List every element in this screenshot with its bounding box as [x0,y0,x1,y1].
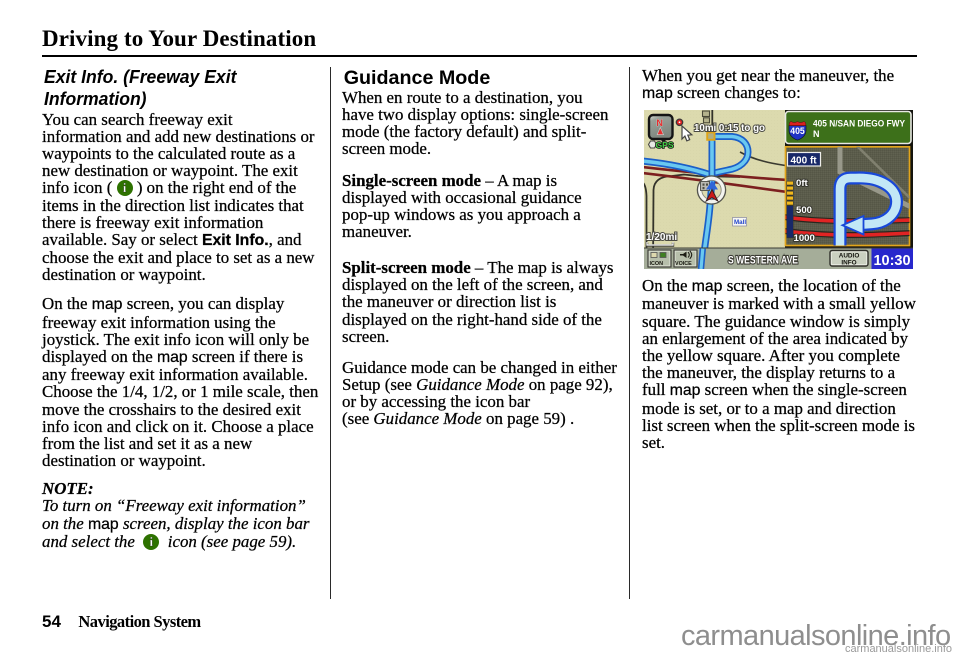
svg-text:N: N [656,118,663,128]
svg-text:S WESTERN AVE: S WESTERN AVE [728,255,798,267]
svg-text:0ft: 0ft [796,178,809,189]
svg-text:405: 405 [790,126,805,136]
svg-text:GPS: GPS [656,140,674,150]
svg-text:400 ft: 400 ft [791,156,818,167]
svg-text:10:30: 10:30 [873,253,910,269]
svg-text:ICON: ICON [650,261,664,267]
svg-text:405 N/SAN DIEGO FWY: 405 N/SAN DIEGO FWY [813,119,905,129]
svg-text:10mi 0:15 to go: 10mi 0:15 to go [694,122,765,134]
svg-text:N: N [813,129,820,139]
svg-text:AUDIO: AUDIO [839,253,860,260]
svg-text:VOICE: VOICE [675,261,692,267]
svg-text:Mall: Mall [734,219,746,226]
svg-text:1000: 1000 [794,233,815,244]
svg-text:500: 500 [796,205,812,216]
svg-text:INFO: INFO [841,260,856,267]
svg-text:1/20mi: 1/20mi [646,232,677,243]
